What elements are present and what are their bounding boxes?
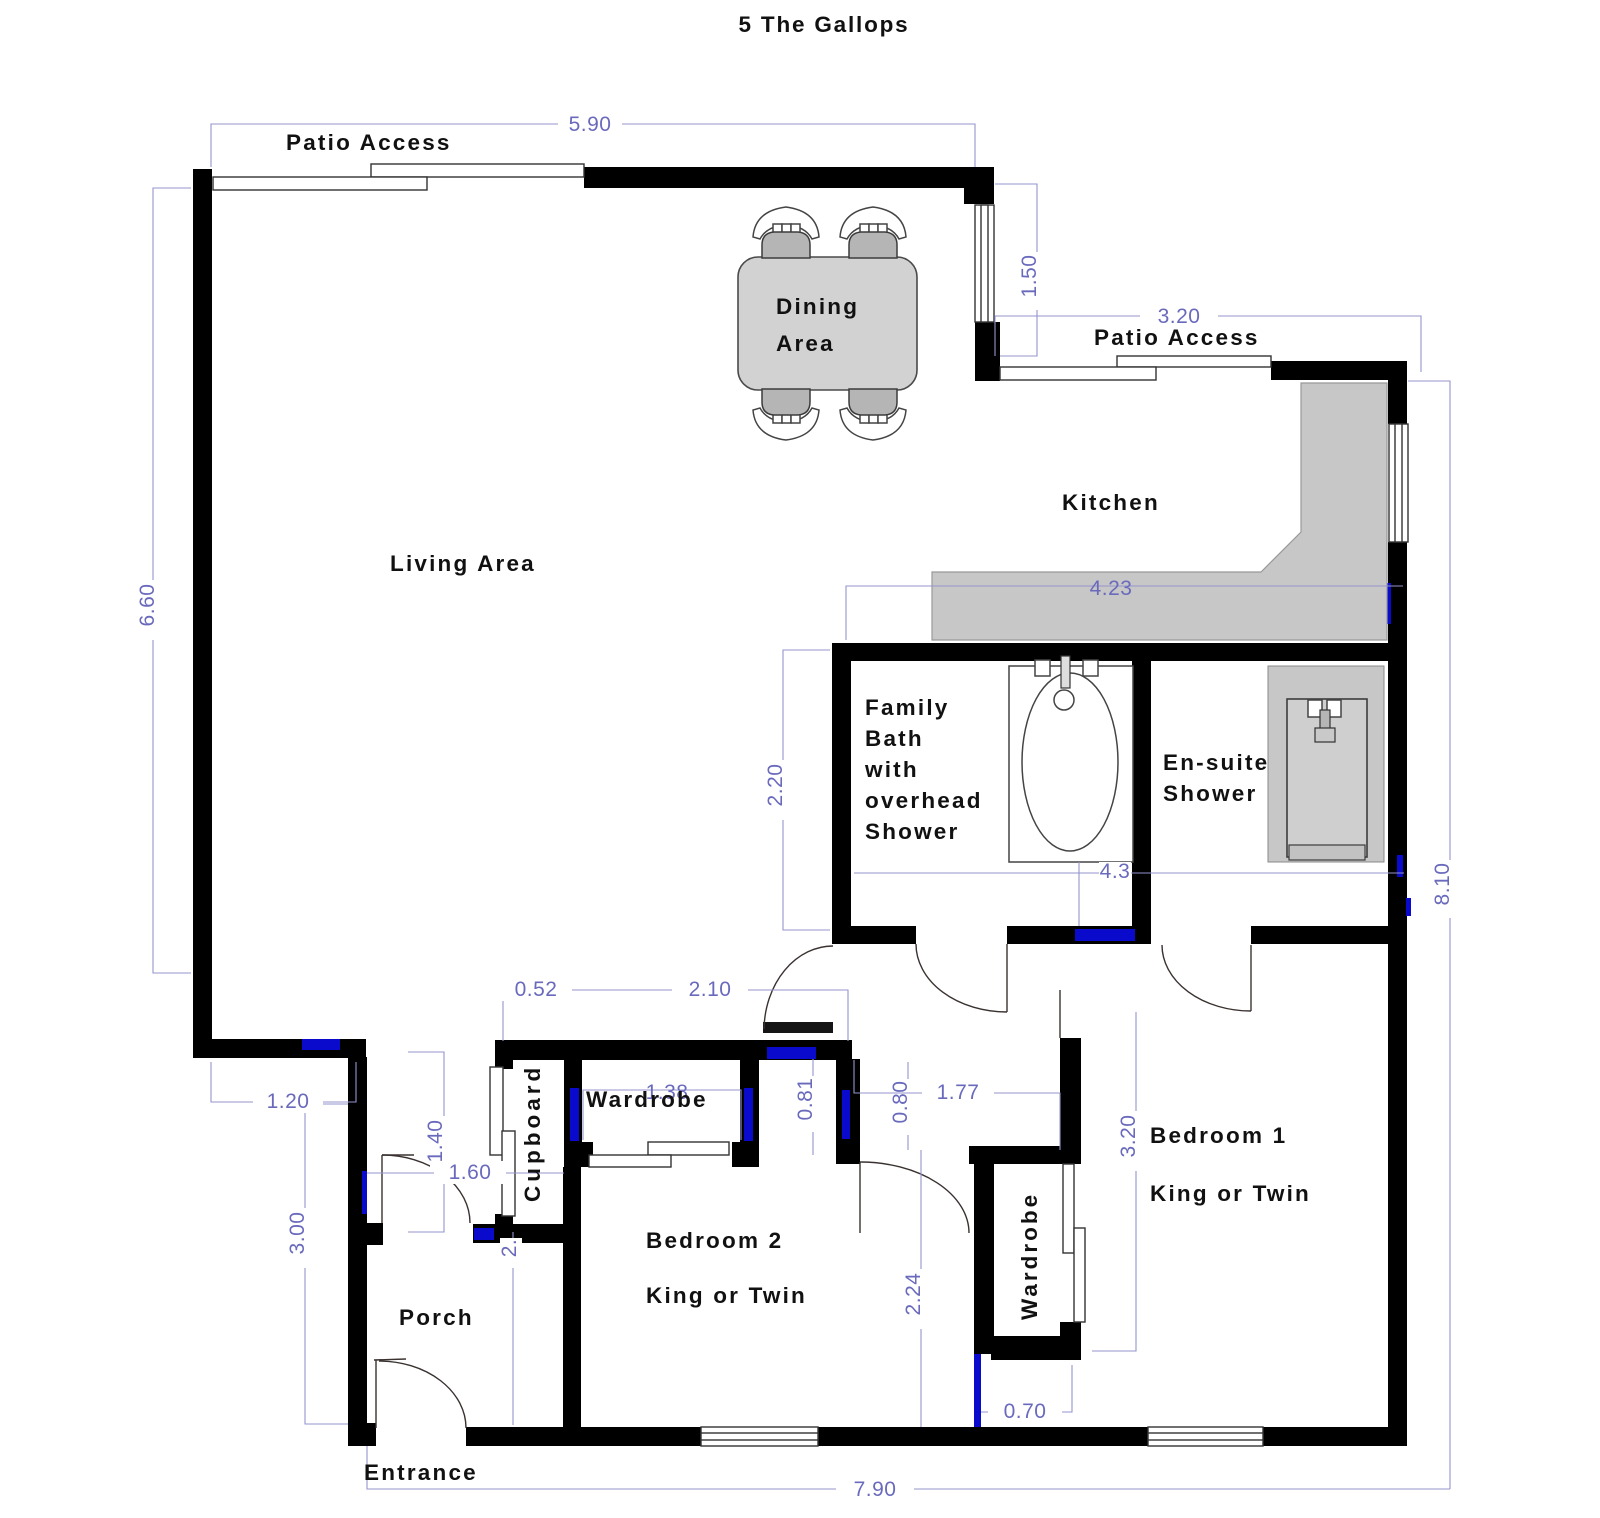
svg-text:Cupboard: Cupboard [520, 1064, 545, 1202]
svg-text:3.00: 3.00 [286, 1212, 309, 1255]
svg-text:overhead: overhead [865, 788, 983, 813]
svg-text:Kitchen: Kitchen [1062, 490, 1160, 515]
svg-text:2.10: 2.10 [689, 978, 732, 1001]
svg-text:King or Twin: King or Twin [1150, 1181, 1311, 1206]
svg-text:0.52: 0.52 [515, 978, 558, 1001]
svg-text:7.90: 7.90 [854, 1478, 897, 1501]
svg-text:Patio Access: Patio Access [1094, 325, 1260, 350]
svg-text:3.20: 3.20 [1117, 1115, 1140, 1158]
svg-text:Patio Access: Patio Access [286, 130, 452, 155]
svg-text:0.81: 0.81 [794, 1078, 817, 1121]
svg-text:Wardrobe: Wardrobe [1017, 1192, 1042, 1320]
svg-text:1.40: 1.40 [424, 1120, 447, 1163]
svg-text:Bedroom 2: Bedroom 2 [646, 1228, 783, 1253]
svg-text:1.20: 1.20 [267, 1090, 310, 1113]
svg-text:Living Area: Living Area [390, 551, 536, 576]
svg-text:4.3: 4.3 [1100, 860, 1131, 883]
svg-text:5 The Gallops: 5 The Gallops [739, 12, 910, 37]
svg-text:5.90: 5.90 [569, 113, 612, 136]
svg-text:2.24: 2.24 [902, 1273, 925, 1316]
svg-text:4.23: 4.23 [1090, 577, 1133, 600]
svg-text:1.50: 1.50 [1018, 255, 1041, 298]
svg-text:Shower: Shower [1163, 781, 1257, 806]
svg-text:6.60: 6.60 [136, 584, 159, 627]
svg-text:Shower: Shower [865, 819, 959, 844]
svg-text:Bath: Bath [865, 726, 924, 751]
svg-text:0.70: 0.70 [1004, 1400, 1047, 1423]
svg-text:Bedroom 1: Bedroom 1 [1150, 1123, 1287, 1148]
svg-text:2.: 2. [498, 1239, 521, 1258]
svg-text:Porch: Porch [399, 1305, 474, 1330]
svg-text:8.10: 8.10 [1431, 863, 1454, 906]
svg-text:Area: Area [776, 331, 835, 356]
svg-text:Dining: Dining [776, 294, 859, 319]
svg-text:Entrance: Entrance [364, 1460, 478, 1485]
svg-text:2.20: 2.20 [764, 764, 787, 807]
svg-text:1.77: 1.77 [937, 1081, 980, 1104]
svg-text:Family: Family [865, 695, 949, 720]
svg-text:En-suite: En-suite [1163, 750, 1269, 775]
svg-text:1.60: 1.60 [449, 1161, 492, 1184]
svg-text:King or Twin: King or Twin [646, 1283, 807, 1308]
svg-text:0.80: 0.80 [889, 1081, 912, 1124]
svg-text:with: with [864, 757, 919, 782]
svg-text:Wardrobe: Wardrobe [586, 1087, 708, 1112]
